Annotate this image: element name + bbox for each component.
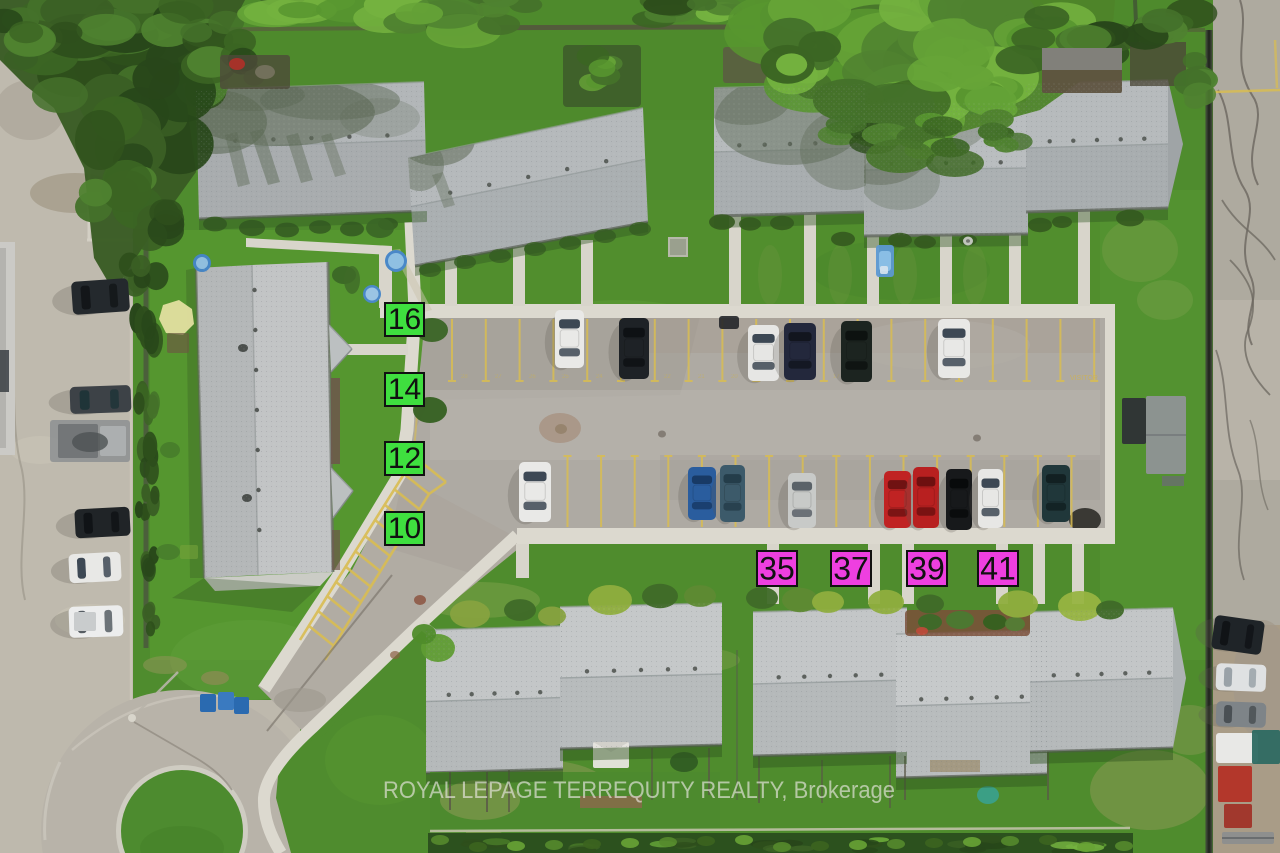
svg-text:41: 41: [980, 551, 1016, 587]
svg-text:37: 37: [833, 551, 869, 587]
svg-text:39: 39: [909, 551, 945, 587]
svg-text:28: 28: [461, 374, 468, 380]
svg-text:22: 22: [664, 374, 671, 380]
svg-text:VISITOR: VISITOR: [1070, 375, 1098, 382]
svg-text:21: 21: [698, 374, 705, 380]
svg-text:26: 26: [529, 374, 536, 380]
svg-text:24: 24: [596, 374, 603, 380]
svg-text:14: 14: [388, 373, 421, 406]
svg-text:10: 10: [388, 512, 421, 545]
svg-text:12: 12: [388, 442, 421, 475]
svg-text:ROYAL LEPAGE TERREQUITY REALTY: ROYAL LEPAGE TERREQUITY REALTY, Brokerag…: [383, 777, 895, 804]
svg-text:16: 16: [388, 303, 421, 336]
svg-text:20: 20: [731, 374, 738, 380]
svg-text:35: 35: [759, 551, 795, 587]
svg-text:25: 25: [562, 374, 569, 380]
svg-text:27: 27: [495, 374, 502, 380]
